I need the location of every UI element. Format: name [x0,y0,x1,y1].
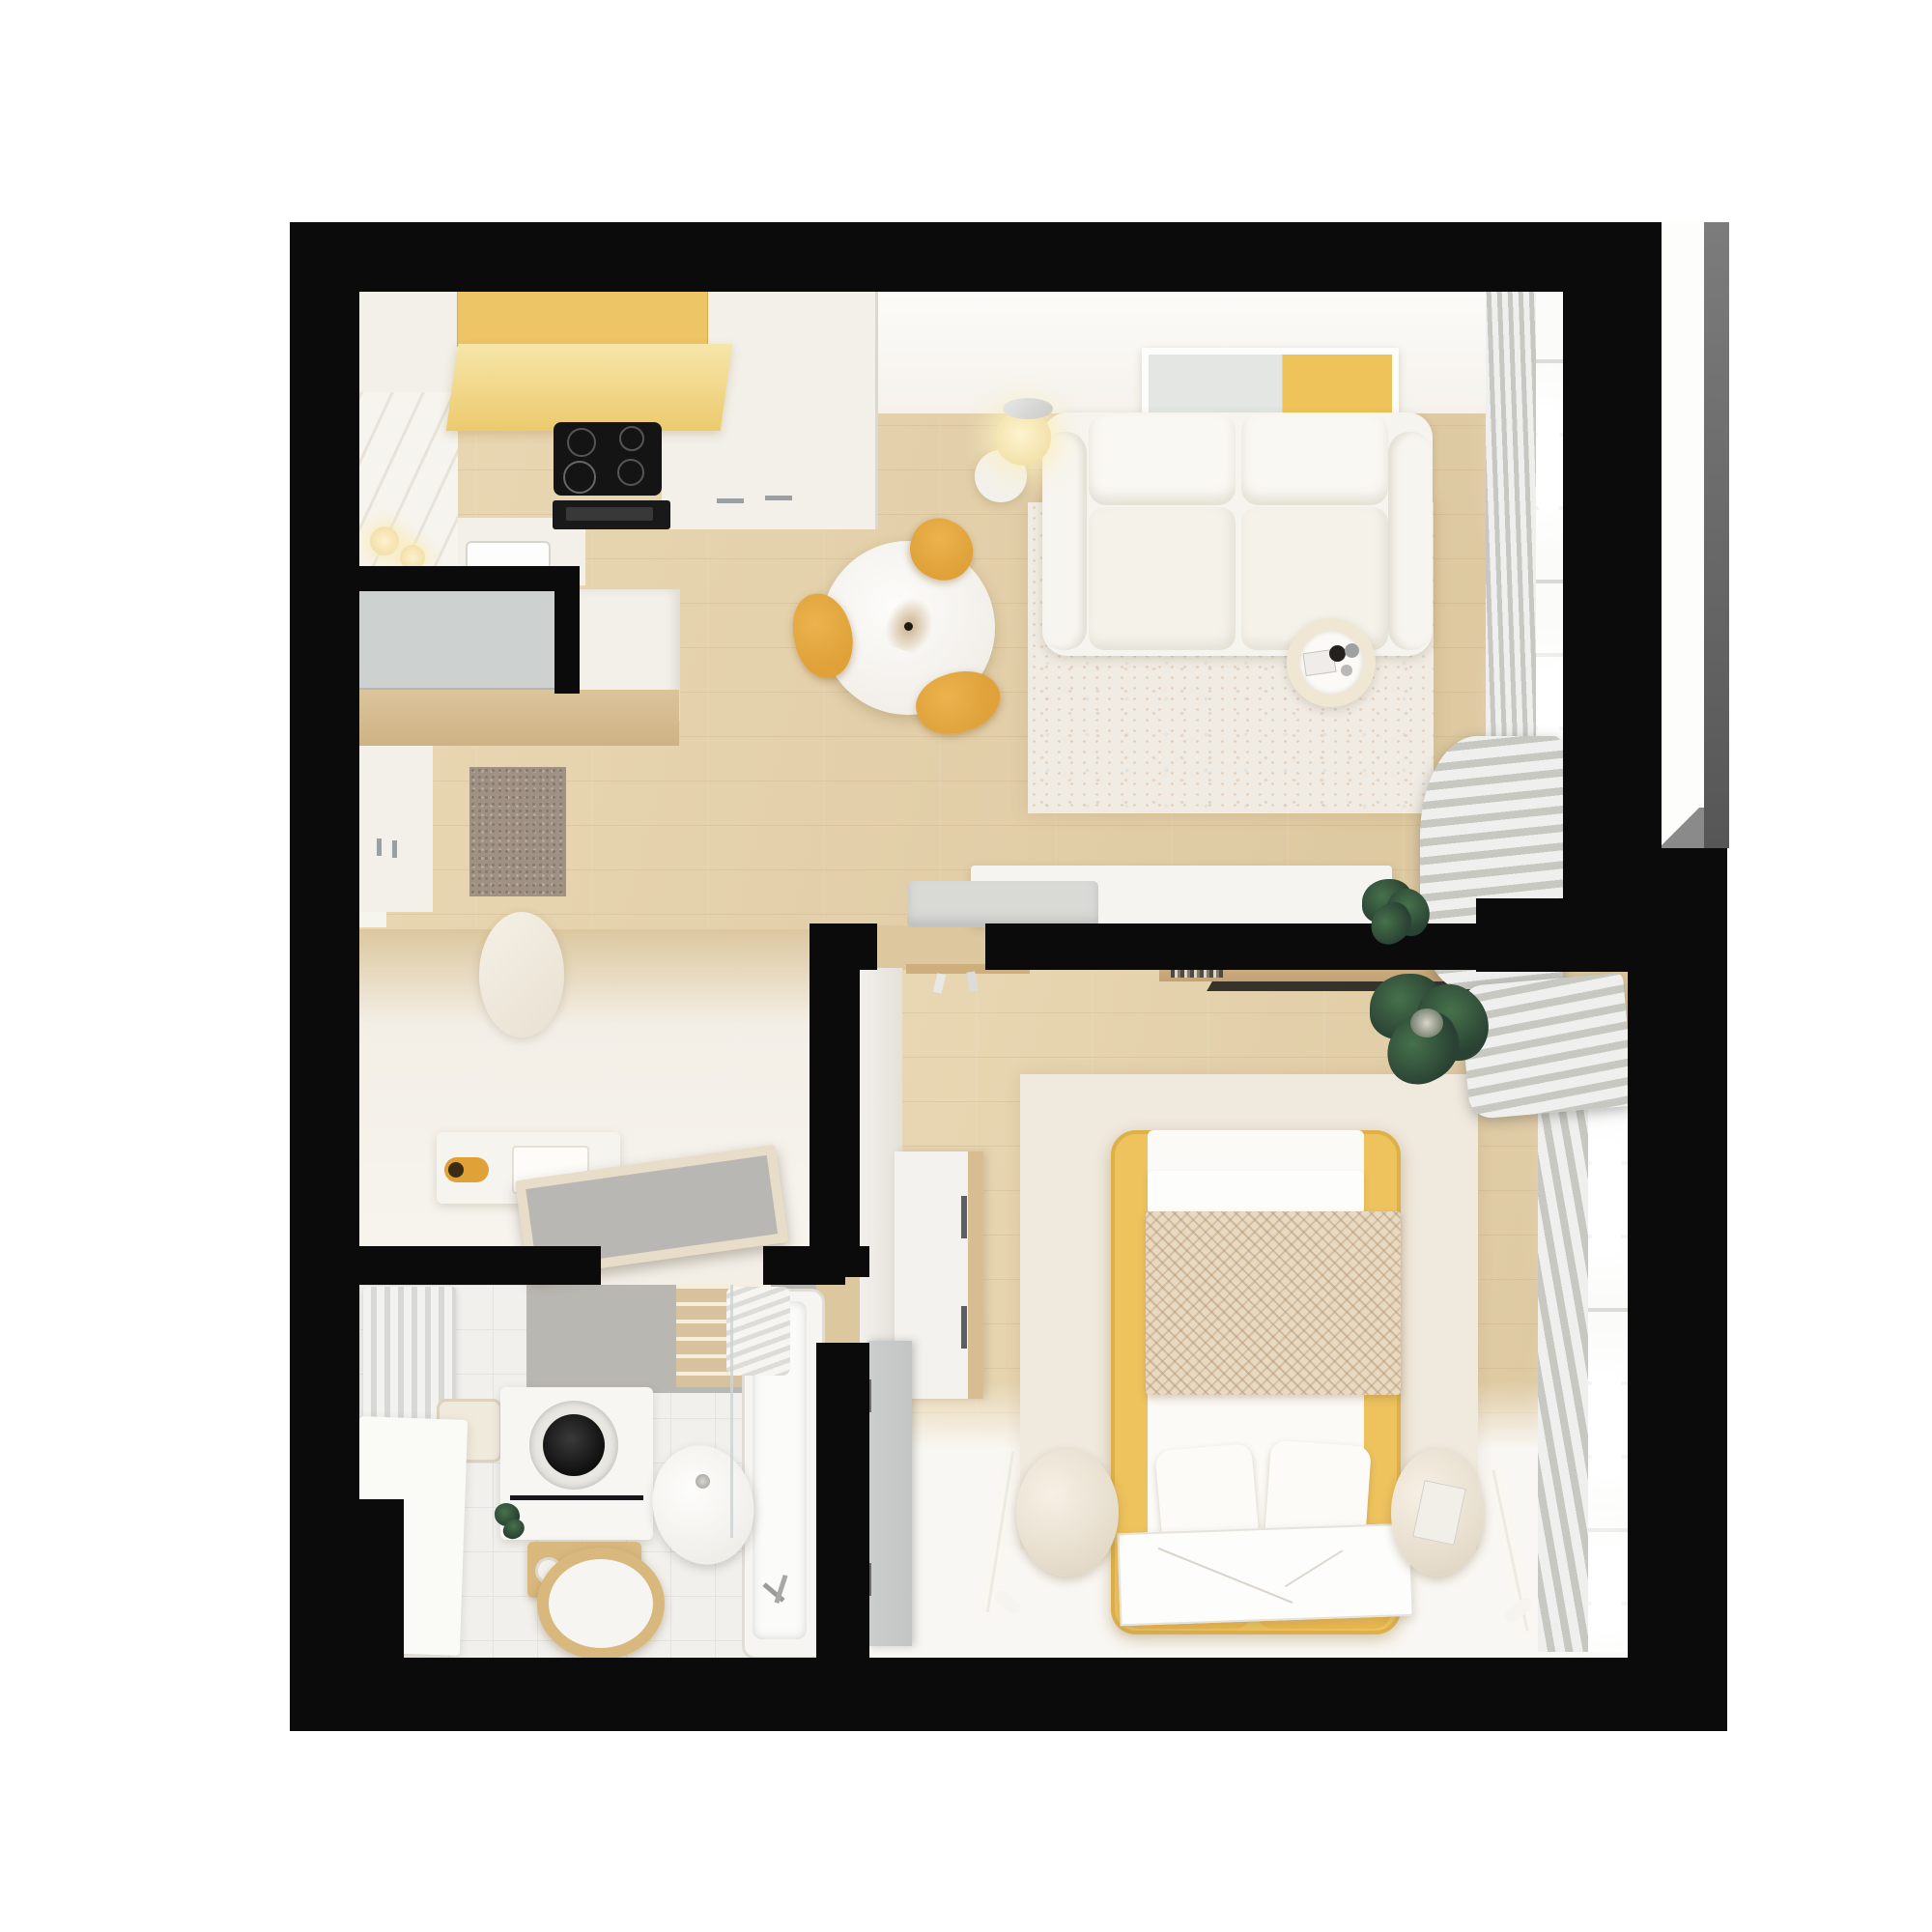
toilet-bowl [641,1436,765,1575]
bath-plant-sprig [491,1499,529,1546]
sofa-back-cushion [1241,414,1388,505]
loggia-gray-edge [1704,222,1729,848]
bedroom-door-gray-open [867,1341,912,1646]
extractor-hood [446,344,733,431]
floor-lamp-top-disc [1003,398,1053,419]
induction-cooktop [554,422,662,496]
toilet [653,1435,753,1571]
wall-bath-step [290,1499,404,1660]
bedroom-curtain [1538,1101,1588,1652]
doormat [469,767,566,896]
drawer-handle [717,498,744,503]
living-window-glow [1538,406,1559,512]
wardrobe-frame-top [290,566,578,591]
bedroom-window-glow [1592,1546,1621,1633]
burner [567,428,596,457]
floor-plan-render [0,0,1932,1932]
toilet-flush-button [696,1474,710,1489]
sideboard-handle [961,1196,967,1238]
loggia-white-strip [1662,222,1704,846]
wall-hall-bath-a [290,1246,601,1285]
wall-sconce [370,526,399,555]
duvet-fold [1148,1171,1364,1213]
gray-bench [907,881,1098,927]
bedroom-window-glow [1592,1140,1621,1256]
wall-bedroom-top-wedge [1476,898,1628,972]
washer-drum [543,1414,605,1476]
sofa-armrest [1388,432,1433,650]
nightstand-left [1016,1449,1119,1577]
yellow-roll-end [448,1162,464,1178]
washer-lid-line [510,1495,643,1500]
burner [563,461,596,494]
tray-vase-small [1341,665,1352,676]
oval-pouf [479,912,564,1037]
wall-right-living [1563,222,1662,850]
tray-vase-gray [1345,643,1359,658]
drawer-handle [765,496,792,500]
hall-wood-shelf [341,690,679,746]
oven-door [566,507,653,521]
sofa-armrest [1042,432,1087,650]
tray-vase-dark [1329,645,1346,662]
wall-right-bedroom [1628,968,1727,1660]
burner [617,459,644,486]
sofa [1042,412,1433,656]
sideboard-handle [961,1306,967,1349]
living-curtain [1486,290,1536,744]
nightstand-book [1412,1480,1466,1546]
wall-bedroom-left [810,923,860,1250]
sofa-seat-cushion [1089,507,1236,650]
wood-ring-basket [537,1548,665,1660]
bedroom-corner-plant [1360,964,1505,1099]
sideboard-wood-edge [968,1151,983,1399]
shower-glass [730,1285,733,1538]
burner [619,426,644,451]
bath-hanging-towel [726,1287,790,1376]
wall-bath-bedroom [816,1343,869,1658]
herringbone-blanket [1146,1211,1401,1395]
vase-dot [904,622,913,631]
gray-wardrobe-top [332,589,556,691]
coffee-table [1287,618,1376,707]
nightstand-right [1391,1449,1484,1577]
living-floor-plant [1356,871,1437,949]
wall-bottom [290,1658,1727,1731]
tall-cabinet-column [829,270,878,529]
wardrobe-frame-right [554,566,580,694]
leaning-print [1117,1523,1413,1627]
sofa-back-cushion [1089,414,1236,505]
bedroom-window-glow [1592,1372,1621,1478]
wall-top [290,222,1662,292]
loggia-corner-shade [1662,808,1704,848]
oven [553,500,670,529]
wall-bath-bedroom-stub [816,1246,869,1277]
